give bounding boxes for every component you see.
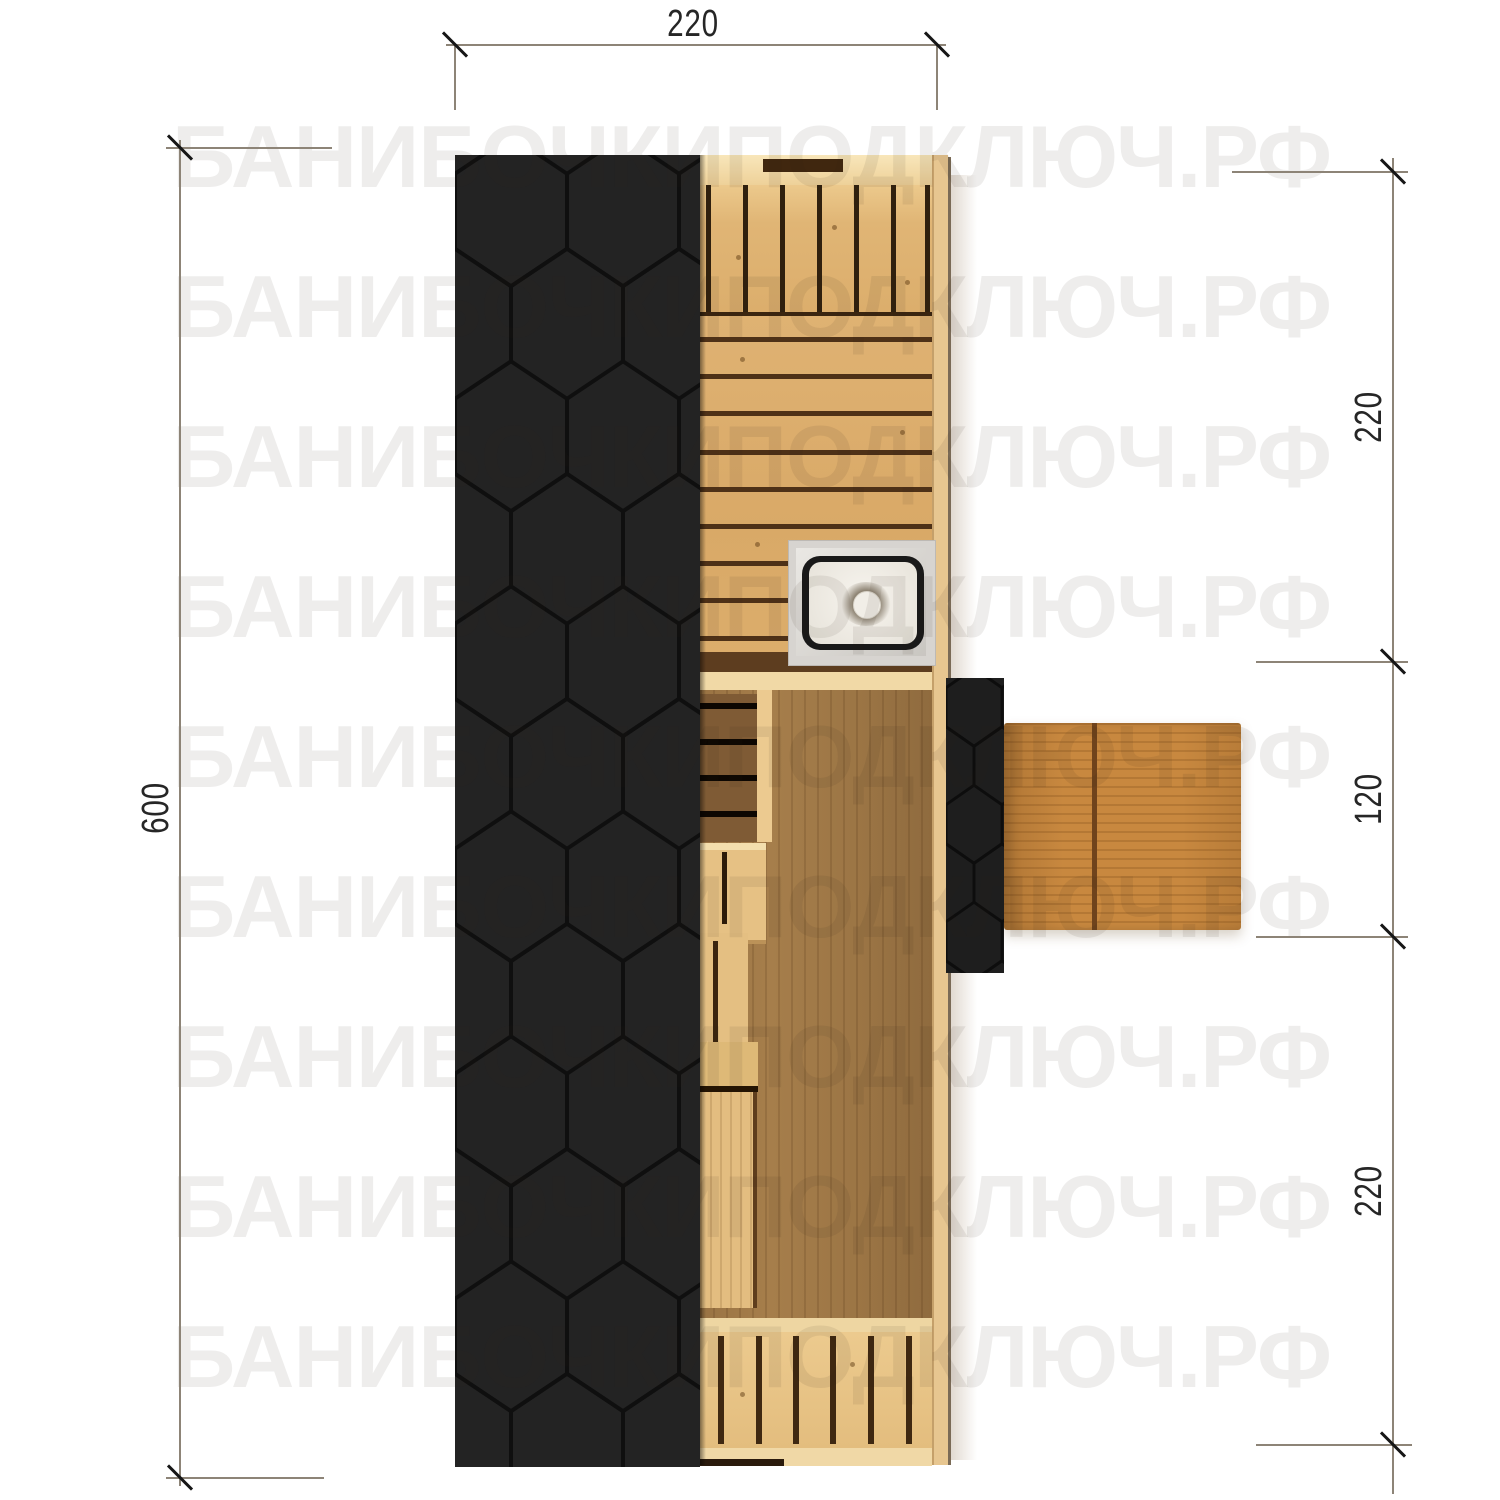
dim-top-ext-left — [454, 44, 456, 110]
mid-wall-strip — [700, 672, 932, 690]
dim-right-ext-1 — [1232, 171, 1408, 173]
slat-gap — [780, 185, 785, 312]
plank-gap — [700, 374, 932, 379]
entry-long-bench — [700, 1092, 757, 1308]
window-bar — [763, 159, 843, 172]
plank-gap — [700, 524, 932, 529]
floor-plan-canvas: БАНИБОЧКИПОДКЛЮЧ.РФ БАНИБОЧКИПОДКЛЮЧ.РФ … — [0, 0, 1500, 1500]
wood-knot — [740, 1392, 745, 1397]
sauna-slat-bench — [700, 185, 932, 312]
sink-unit — [788, 540, 936, 666]
roof-edge-shadow — [700, 155, 706, 1465]
dim-left-ext-top — [166, 147, 332, 149]
landing-plank-seam — [1092, 723, 1097, 930]
dim-label-right-bottom: 220 — [1347, 1144, 1391, 1238]
deck-slat-gap — [718, 1336, 724, 1444]
bench-slat-gap — [700, 811, 757, 817]
entry-step-lower — [700, 933, 748, 1051]
bottom-shadow-bar — [700, 1459, 784, 1466]
wood-knot — [832, 225, 837, 230]
bench-slat-gap — [700, 739, 757, 745]
slat-gap — [891, 185, 896, 312]
plank-gap — [700, 411, 932, 416]
slat-gap — [706, 185, 711, 312]
step-slot — [713, 941, 718, 1043]
wood-knot — [850, 1362, 855, 1367]
entry-bench-side-board — [757, 690, 772, 842]
dim-label-left-height: 600 — [134, 761, 178, 855]
sink-drain — [853, 591, 881, 619]
dim-top-ext-right — [936, 44, 938, 110]
bench-slat-gap — [700, 703, 757, 709]
dim-label-right-top: 220 — [1347, 370, 1391, 464]
deck-slat-gap — [906, 1336, 912, 1444]
plank-gap — [700, 312, 932, 316]
plank-gap — [700, 450, 932, 455]
dim-right-line — [1392, 158, 1394, 1494]
entry-shelf-strip — [700, 1042, 758, 1086]
roof-overhang — [455, 155, 700, 1467]
wood-knot — [905, 280, 910, 285]
bottom-deck — [700, 1332, 932, 1448]
entry-dark-bench — [700, 694, 757, 842]
deck-slat-gap — [756, 1336, 762, 1444]
wood-knot — [900, 430, 905, 435]
dim-label-right-middle: 120 — [1347, 752, 1391, 846]
dim-right-ext-4 — [1256, 1444, 1412, 1446]
porch-canopy — [946, 678, 1004, 973]
dim-left-line — [179, 140, 181, 1486]
slat-gap — [817, 185, 822, 312]
deck-top-lip — [700, 1318, 932, 1332]
entry-steps-landing — [1004, 723, 1241, 930]
entry-step-upper — [700, 843, 766, 944]
dim-right-ext-3 — [1256, 936, 1408, 938]
wood-knot — [755, 542, 760, 547]
plank-gap — [700, 487, 932, 492]
deck-slat-gap — [868, 1336, 874, 1444]
slat-gap — [925, 185, 930, 312]
dim-left-ext-bottom — [166, 1477, 324, 1479]
dim-right-ext-2 — [1256, 661, 1408, 663]
slat-gap — [854, 185, 859, 312]
slat-gap — [743, 185, 748, 312]
bench-slat-gap — [700, 775, 757, 781]
wood-knot — [736, 255, 741, 260]
deck-slat-gap — [830, 1336, 836, 1444]
dim-label-top-width: 220 — [646, 2, 740, 46]
step-slot — [722, 852, 727, 924]
plank-gap — [700, 337, 932, 342]
deck-slat-gap — [793, 1336, 799, 1444]
wood-knot — [740, 357, 745, 362]
